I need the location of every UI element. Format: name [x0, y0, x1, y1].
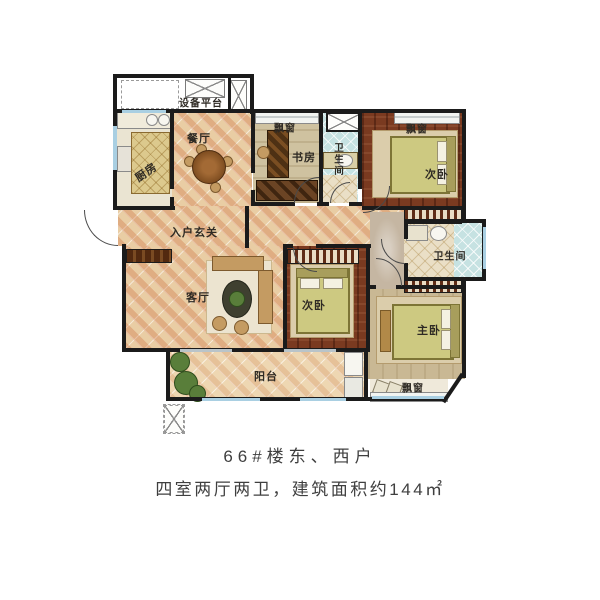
- balcony-slider: [180, 349, 232, 352]
- kitchen-sink: [158, 114, 170, 126]
- master-bench: [380, 310, 391, 352]
- entry-door-arc: [84, 210, 118, 246]
- living-sofa: [212, 256, 264, 271]
- platform-dashed-area: [121, 80, 179, 109]
- balcony-slider: [284, 349, 336, 352]
- balcony-basin: [344, 352, 363, 376]
- balcony-cabinet: [344, 377, 363, 398]
- living-sofa: [258, 270, 273, 324]
- wall-segment: [250, 74, 254, 114]
- caption-building-unit: 66#楼东、西户: [0, 442, 600, 467]
- wall-segment: [462, 277, 466, 378]
- wall-segment: [113, 74, 254, 78]
- living-pouf: [212, 316, 227, 331]
- wall-segment: [358, 109, 362, 189]
- wall-segment: [396, 285, 466, 289]
- label-living: 客厅: [186, 289, 210, 305]
- window-glass: [483, 227, 486, 269]
- wall-segment: [113, 206, 175, 210]
- window-x-icon: [230, 80, 247, 112]
- wall-segment: [462, 109, 466, 209]
- window-glass: [372, 396, 444, 399]
- label-bay-window-top-right: 飘窗: [406, 121, 428, 136]
- label-master: 主卧: [417, 322, 441, 338]
- study-chair: [257, 146, 270, 159]
- study-desk: [267, 130, 289, 178]
- bath-right-vanity: [406, 225, 428, 241]
- label-foyer: 入户玄关: [170, 224, 218, 240]
- room-foyer: [118, 206, 404, 246]
- wall-segment: [170, 109, 174, 189]
- table-plant: [229, 291, 245, 307]
- wall-segment: [122, 244, 126, 352]
- pillow: [441, 330, 451, 350]
- wall-segment: [368, 285, 376, 289]
- wall-segment: [113, 74, 117, 114]
- label-bedroom-top-right: 次卧: [425, 166, 449, 182]
- bedroom-top-right-headboard: [446, 136, 456, 192]
- wall-segment: [166, 348, 170, 401]
- pillow: [437, 141, 447, 162]
- wall-segment: [251, 202, 295, 206]
- caption-layout-area: 四室两厅两卫，建筑面积约144㎡: [0, 475, 600, 500]
- wall-segment: [251, 109, 255, 173]
- wall-segment: [228, 76, 231, 112]
- balcony-plant: [170, 352, 190, 372]
- kitchen-sink: [146, 114, 158, 126]
- window-glass: [300, 398, 346, 401]
- window-glass: [202, 398, 260, 401]
- label-equipment-platform: 设备平台: [179, 95, 223, 110]
- duct-shaft-icon: [326, 112, 362, 132]
- shoe-cabinet: [126, 249, 172, 263]
- bath-right-toilet: [430, 226, 447, 241]
- wall-segment: [170, 197, 174, 210]
- floorplan: 设备平台 餐厅 厨房 飘窗 书房 卫生间 飘窗 次卧 入户玄关 卫生间 客厅 次…: [0, 0, 600, 600]
- living-pouf: [234, 320, 249, 335]
- label-dining: 餐厅: [187, 130, 211, 146]
- label-bedroom-middle: 次卧: [302, 297, 326, 313]
- pillow: [323, 278, 343, 289]
- label-bay-window-bottom: 飘窗: [402, 380, 424, 395]
- wall-segment: [319, 109, 323, 206]
- window-x-icon: [164, 405, 184, 433]
- label-balcony: 阳台: [254, 368, 278, 384]
- wall-segment: [366, 244, 370, 352]
- floorplan-page: 设备平台 餐厅 厨房 飘窗 书房 卫生间 飘窗 次卧 入户玄关 卫生间 客厅 次…: [0, 0, 600, 600]
- wall-segment: [316, 244, 371, 248]
- pillow: [300, 278, 320, 289]
- label-bay-window-study: 飘窗: [274, 120, 296, 135]
- wall-segment: [283, 244, 287, 352]
- wall-segment: [404, 219, 464, 223]
- master-headboard: [450, 304, 460, 358]
- wall-segment: [404, 277, 464, 281]
- label-study: 书房: [292, 149, 316, 165]
- window-glass: [122, 110, 166, 113]
- bedroom-middle-headboard: [296, 268, 348, 278]
- wall-segment: [364, 350, 368, 401]
- wall-segment: [245, 206, 249, 248]
- window-glass: [113, 126, 117, 170]
- pillow: [441, 309, 451, 329]
- label-bath-right: 卫生间: [434, 248, 467, 263]
- label-bath-top: 卫生间: [330, 143, 344, 178]
- dining-table: [192, 150, 226, 184]
- wall-segment: [349, 202, 362, 206]
